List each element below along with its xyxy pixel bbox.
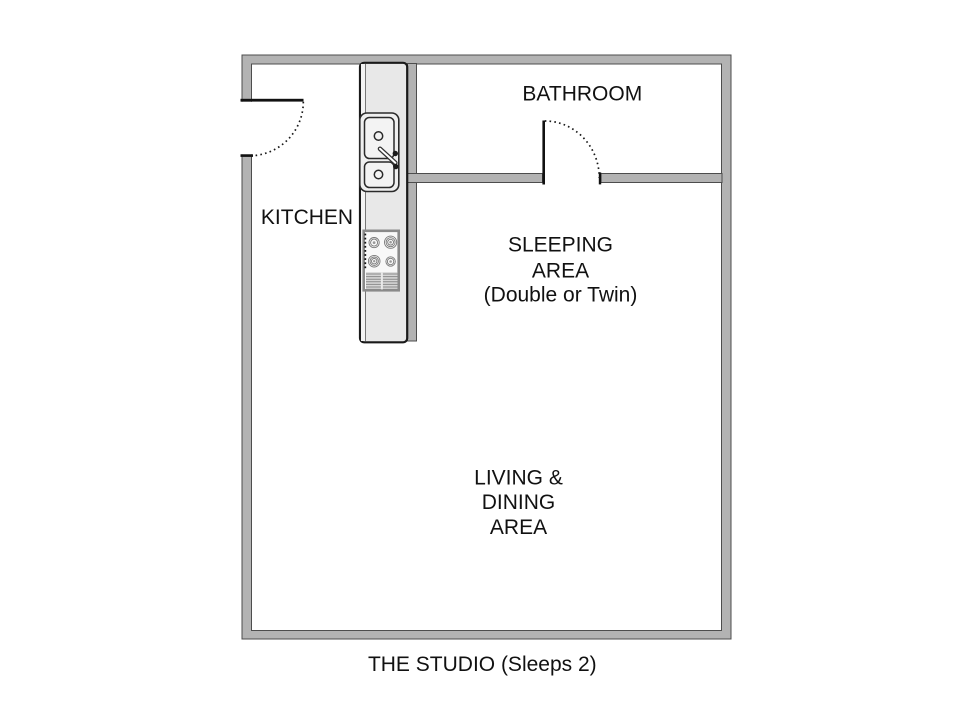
svg-text:BATHROOM: BATHROOM <box>522 83 642 106</box>
svg-text:DINING: DINING <box>482 491 556 514</box>
svg-text:(Double or Twin): (Double or Twin) <box>484 284 638 307</box>
svg-text:AREA: AREA <box>490 516 547 539</box>
svg-text:THE STUDIO (Sleeps 2): THE STUDIO (Sleeps 2) <box>368 653 597 676</box>
svg-text:AREA: AREA <box>532 259 589 282</box>
svg-text:KITCHEN: KITCHEN <box>261 206 353 229</box>
svg-text:LIVING &: LIVING & <box>474 467 563 490</box>
svg-text:SLEEPING: SLEEPING <box>508 234 613 257</box>
